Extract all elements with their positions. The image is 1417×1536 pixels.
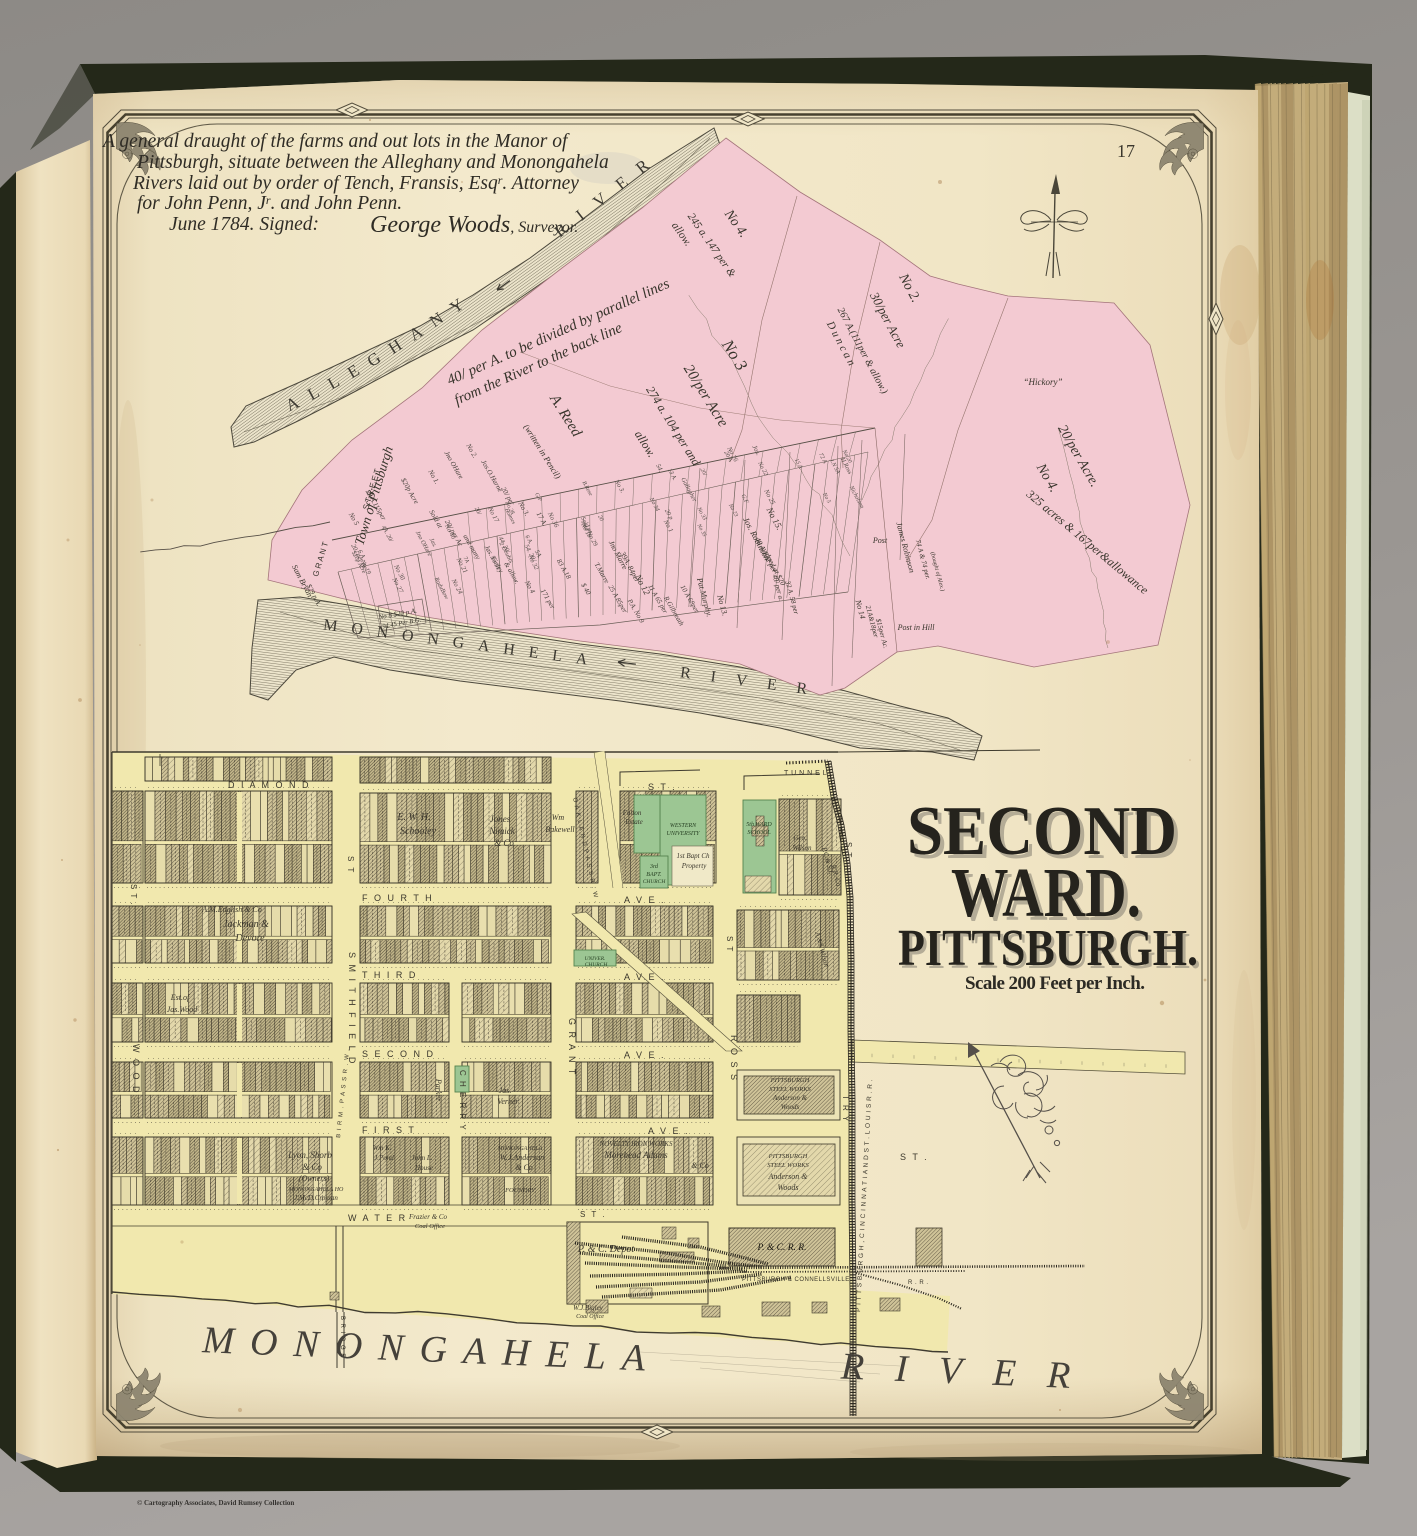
svg-text:5th WARD: 5th WARD xyxy=(746,822,772,828)
svg-text:Anderson &: Anderson & xyxy=(768,1172,809,1181)
svg-text:Geo.: Geo. xyxy=(793,834,807,842)
svg-text:Post: Post xyxy=(872,536,888,545)
svg-text:& Co: & Co xyxy=(515,1163,533,1172)
svg-text:MONONGAHELA: MONONGAHELA xyxy=(497,1146,543,1152)
svg-text:PITTSBURGH & CONNELLSVILLE: PITTSBURGH & CONNELLSVILLE xyxy=(742,1277,850,1283)
svg-text:for John Penn, Jr. and John Pe: for John Penn, Jr. and John Penn. xyxy=(137,193,402,214)
svg-text:Morehead Adams: Morehead Adams xyxy=(603,1150,668,1160)
svg-text:Devore: Devore xyxy=(234,933,265,944)
svg-text:& Co: & Co xyxy=(302,1162,322,1172)
svg-text:A V E .: A V E . xyxy=(648,1126,690,1136)
svg-text:Schooley: Schooley xyxy=(400,826,437,837)
svg-text:W A T E R: W A T E R xyxy=(348,1213,407,1223)
svg-text:R O S S: R O S S xyxy=(729,1035,739,1082)
svg-text:Wm: Wm xyxy=(552,813,565,822)
svg-text:A general draught of the farms: A general draught of the farms and out l… xyxy=(101,131,570,152)
svg-text:Pittsburgh, situate between th: Pittsburgh, situate between the Alleghan… xyxy=(136,152,609,173)
svg-text:P. & C. R. R.: P. & C. R. R. xyxy=(757,1243,807,1253)
svg-text:A.M.English & Co: A.M.English & Co xyxy=(201,905,262,914)
svg-text:Scale 200 Feet per Inch.: Scale 200 Feet per Inch. xyxy=(965,973,1145,994)
svg-text:June 1784. Signed:: June 1784. Signed: xyxy=(169,214,319,235)
svg-text:FOUNDRY: FOUNDRY xyxy=(504,1187,536,1194)
svg-text:MONONGAHELA HO: MONONGAHELA HO xyxy=(288,1187,344,1193)
svg-text:“Hickory”: “Hickory” xyxy=(1024,377,1063,387)
svg-text:PITTSBURGH.: PITTSBURGH. xyxy=(898,920,1198,977)
svg-text:Estate: Estate xyxy=(624,818,643,826)
svg-text:Coal Office: Coal Office xyxy=(576,1313,604,1320)
svg-text:S T .: S T . xyxy=(900,1152,929,1162)
svg-text:S T .: S T . xyxy=(580,1210,607,1219)
svg-text:PITTSBURGH: PITTSBURGH xyxy=(770,1077,810,1084)
svg-text:A V E .: A V E . xyxy=(624,1050,666,1060)
svg-text:D I A M O N D: D I A M O N D xyxy=(228,780,311,790)
svg-text:Property: Property xyxy=(681,862,708,870)
svg-text:S T: S T xyxy=(725,936,734,953)
svg-text:W O O D: W O O D xyxy=(131,1044,141,1095)
svg-text:Post in Hill: Post in Hill xyxy=(897,623,936,632)
svg-text:Jas.: Jas. xyxy=(499,1086,512,1095)
svg-text:SCHOOL: SCHOOL xyxy=(747,830,771,836)
svg-text:Woods: Woods xyxy=(781,1103,800,1111)
svg-text:F I R S T: F I R S T xyxy=(362,1125,416,1135)
svg-text:WESTERN: WESTERN xyxy=(670,823,697,829)
svg-text:1st Bapt Ch: 1st Bapt Ch xyxy=(676,852,710,860)
svg-text:S E C O N D: S E C O N D xyxy=(362,1049,435,1059)
svg-text:17: 17 xyxy=(1117,141,1135,161)
svg-text:S T .: S T . xyxy=(129,884,138,906)
svg-text:3rd: 3rd xyxy=(649,864,659,870)
svg-text:NOVELTY IRON WORKS: NOVELTY IRON WORKS xyxy=(599,1140,673,1148)
svg-text:R . R .: R . R . xyxy=(908,1280,929,1286)
svg-text:Fulton: Fulton xyxy=(622,809,642,817)
svg-text:Nimick: Nimick xyxy=(488,826,515,836)
svg-text:J.McD.Crossan: J.McD.Crossan xyxy=(294,1194,338,1202)
svg-text:© Cartography Associates, Davi: © Cartography Associates, David Rumsey C… xyxy=(137,1499,294,1507)
svg-text:CHURCH: CHURCH xyxy=(643,879,667,885)
svg-text:S T .: S T . xyxy=(648,782,677,792)
svg-text:P. & C. Depot: P. & C. Depot xyxy=(577,1244,634,1255)
svg-text:T R Y: T R Y xyxy=(841,1095,850,1123)
svg-text:G R A N T: G R A N T xyxy=(567,1018,577,1076)
svg-text:T U N N E L: T U N N E L xyxy=(784,770,827,777)
svg-text:(Owners): (Owners) xyxy=(299,1174,330,1183)
svg-text:F O U R T H: F O U R T H xyxy=(362,893,434,903)
svg-text:Parker: Parker xyxy=(434,1078,443,1102)
svg-text:W.J.Anderson: W.J.Anderson xyxy=(500,1153,544,1162)
svg-text:Lyon, Shorb: Lyon, Shorb xyxy=(287,1150,332,1160)
svg-text:Anderson &: Anderson & xyxy=(772,1094,808,1102)
svg-text:STEEL WORKS: STEEL WORKS xyxy=(767,1162,809,1169)
svg-text:J.Pond: J.Pond xyxy=(374,1154,394,1162)
svg-text:A V E .: A V E . xyxy=(624,972,666,982)
svg-text:Rivers laid out by order of Te: Rivers laid out by order of Tench, Frans… xyxy=(132,173,579,194)
svg-text:Bakewell: Bakewell xyxy=(545,825,575,834)
svg-text:UNIVERSITY: UNIVERSITY xyxy=(667,831,701,837)
svg-text:T H I R D: T H I R D xyxy=(362,970,417,980)
svg-text:PITTSBURGH: PITTSBURGH xyxy=(768,1153,808,1160)
svg-text:S T .: S T . xyxy=(844,842,853,866)
svg-text:C H E R R Y: C H E R R Y xyxy=(458,1070,467,1131)
svg-text:Woods: Woods xyxy=(777,1183,798,1192)
svg-text:Jackman &: Jackman & xyxy=(223,919,269,930)
svg-text:House: House xyxy=(414,1164,433,1172)
svg-text:STEEL WORKS: STEEL WORKS xyxy=(769,1086,811,1093)
svg-text:& Co: & Co xyxy=(691,1161,709,1170)
svg-text:& Co: & Co xyxy=(494,838,514,848)
svg-text:Frazier & Co: Frazier & Co xyxy=(408,1213,448,1221)
svg-text:CHURCH: CHURCH xyxy=(585,962,609,968)
svg-text:Verner: Verner xyxy=(497,1097,519,1106)
svg-text:A V E .: A V E . xyxy=(624,895,666,905)
svg-text:Coal Office: Coal Office xyxy=(415,1223,445,1230)
svg-text:Jones: Jones xyxy=(490,814,511,824)
svg-text:Est.of: Est.of xyxy=(170,993,191,1002)
svg-text:John L.: John L. xyxy=(412,1154,433,1162)
svg-text:Jas.Wood: Jas.Wood xyxy=(167,1005,199,1014)
svg-text:S T: S T xyxy=(346,856,355,874)
svg-text:W.J.Bigley: W.J.Bigley xyxy=(573,1304,604,1312)
svg-text:BAPT.: BAPT. xyxy=(646,872,661,878)
svg-text:E. W. H.: E. W. H. xyxy=(396,812,430,823)
svg-text:Wilson: Wilson xyxy=(792,844,812,852)
svg-text:Wm K.: Wm K. xyxy=(372,1144,391,1152)
